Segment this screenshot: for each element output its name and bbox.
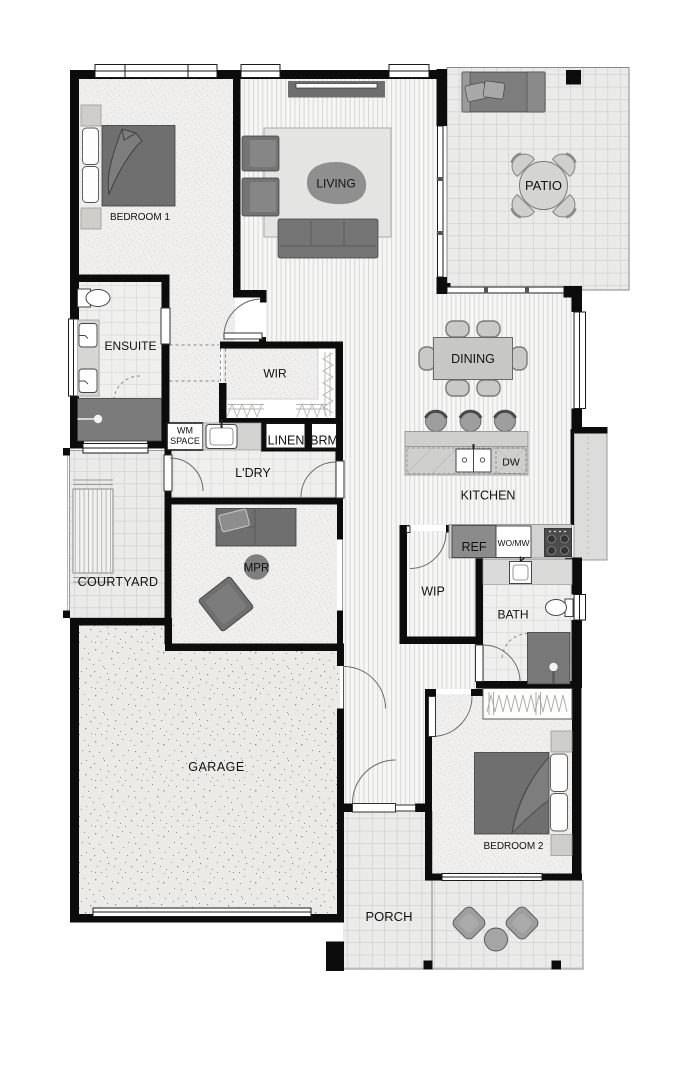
svg-text:WM: WM — [177, 426, 193, 436]
svg-text:REF: REF — [462, 540, 487, 554]
svg-text:COURTYARD: COURTYARD — [78, 575, 159, 589]
svg-text:PATIO: PATIO — [525, 178, 562, 193]
svg-text:SPACE: SPACE — [170, 436, 200, 446]
svg-text:WIP: WIP — [421, 585, 445, 599]
svg-text:KITCHEN: KITCHEN — [461, 489, 516, 503]
svg-text:BATH: BATH — [497, 608, 528, 622]
svg-text:LINEN: LINEN — [268, 434, 305, 448]
svg-text:LIVING: LIVING — [316, 177, 355, 191]
svg-text:PORCH: PORCH — [366, 909, 413, 924]
svg-text:BRM: BRM — [310, 434, 338, 448]
svg-text:MPR: MPR — [244, 563, 270, 575]
svg-text:GARAGE: GARAGE — [188, 760, 245, 774]
svg-text:DINING: DINING — [451, 352, 495, 366]
svg-text:BEDROOM 1: BEDROOM 1 — [110, 212, 170, 223]
svg-text:L'DRY: L'DRY — [235, 466, 271, 480]
svg-text:DW: DW — [502, 457, 520, 469]
svg-text:WIR: WIR — [263, 367, 287, 381]
svg-text:WO/MW: WO/MW — [497, 538, 529, 548]
svg-text:BEDROOM 2: BEDROOM 2 — [483, 841, 543, 852]
svg-text:ENSUITE: ENSUITE — [104, 339, 156, 353]
